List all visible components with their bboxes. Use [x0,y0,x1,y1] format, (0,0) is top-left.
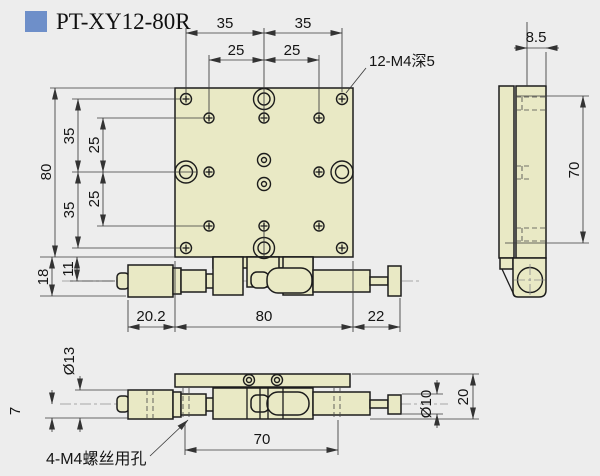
micrometer-barrel [128,265,173,297]
side-view: 8.5 70 [499,22,589,297]
side-step-block [500,258,513,269]
callout-leader [150,420,188,456]
dim-label: Ø10 [418,390,435,418]
dim-label: 80 [256,308,273,325]
dim-label: Ø13 [61,347,78,375]
micrometer-tip [117,396,129,412]
dim-label: 25 [86,191,103,208]
dim-label: 8.5 [526,29,547,46]
dim-label: 35 [217,15,234,32]
dim-label: 18 [35,269,52,286]
dim-label: 80 [38,164,55,181]
spring-knob [388,395,401,414]
dim-label: 7 [7,407,24,415]
side-base-plate [516,86,546,258]
plate-edge-bar [175,374,350,387]
dim-label: 25 [284,42,301,59]
micrometer-lock-ring [173,392,181,417]
title-block: PT-XY12-80R [25,9,191,34]
dim-label: 25 [228,42,245,59]
carriage-left-block [213,257,243,295]
dim-label: 22 [368,308,385,325]
slide-pin [267,392,309,415]
callout-leader [346,68,366,93]
dim-label: 70 [566,162,583,179]
drive-cylinder [313,270,370,292]
spring-rod [370,277,388,285]
dim-label: 35 [61,202,78,219]
dim-label: 70 [254,431,271,448]
side-chamfer-edge [502,269,514,295]
dim-label: 20.2 [136,308,165,325]
hole-callout-label: 4-M4螺丝用孔 [46,450,146,468]
dim-label: 11 [60,261,77,277]
micrometer-tip [117,273,129,289]
spring-knob [388,266,401,296]
bottom-view: Ø13 7 70 Ø10 20 4-M4螺丝用孔 [7,347,479,468]
product-model-title: PT-XY12-80R [56,9,191,34]
front-view: 35 35 25 25 80 35 25 25 35 18 11 20.2 80… [35,15,435,332]
spring-rod [370,400,388,408]
dim-label: 35 [295,15,312,32]
drawing-canvas: PT-XY12-80R [0,0,600,476]
dim-label: 20 [455,389,472,406]
drive-cylinder [313,392,370,415]
technical-drawing: PT-XY12-80R [0,0,600,476]
micrometer-lock-ring [173,268,181,294]
side-moving-plate [499,86,514,258]
dim-label: 35 [61,128,78,145]
micrometer-barrel [128,390,173,419]
micrometer-sleeve [181,394,206,415]
legend-color-swatch [25,11,47,32]
slide-pin [267,268,312,293]
dim-label: 25 [86,137,103,154]
micrometer-sleeve [181,270,206,292]
hole-callout-label: 12-M4深5 [369,53,435,70]
